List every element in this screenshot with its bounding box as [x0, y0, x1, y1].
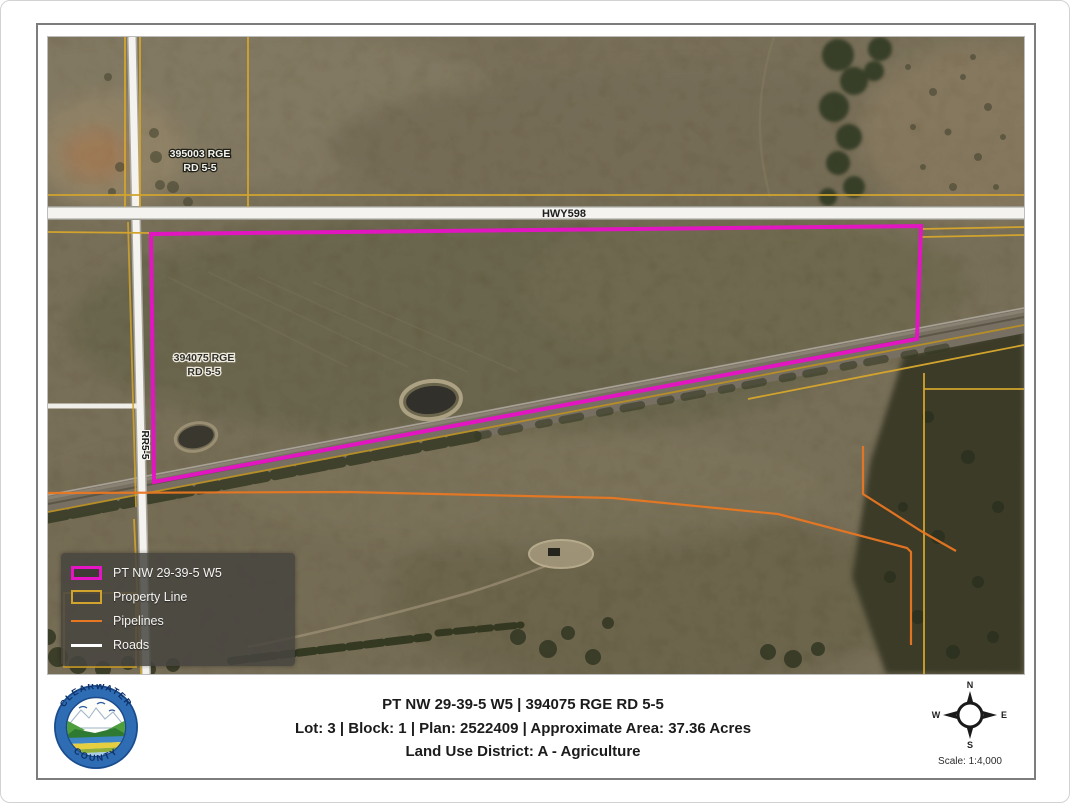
compass-west-label: W — [932, 710, 941, 720]
map-report-page: HWY598 395003 RGE RD 5-5 394075 RGE RD 5… — [0, 0, 1070, 803]
map-frame: HWY598 395003 RGE RD 5-5 394075 RGE RD 5… — [36, 23, 1036, 780]
county-logo-svg: CLEARWATER COUNTY — [53, 684, 139, 770]
legend-item-parcel: PT NW 29-39-5 W5 — [71, 561, 283, 585]
aerial-map-canvas: HWY598 395003 RGE RD 5-5 394075 RGE RD 5… — [48, 37, 1024, 674]
legend-item-roads: Roads — [71, 633, 283, 657]
rr-road-label: RR5-5 — [139, 431, 150, 460]
legend-label: PT NW 29-39-5 W5 — [113, 566, 222, 580]
rge-rd-mid-label-line2: RD 5-5 — [187, 366, 220, 378]
footer-line-1: PT NW 29-39-5 W5 | 394075 RGE RD 5-5 — [153, 693, 893, 717]
legend: PT NW 29-39-5 W5 Property Line Pipelines… — [61, 553, 295, 666]
rge-rd-mid-label-line1: 394075 RGE — [174, 352, 235, 364]
legend-label: Roads — [113, 638, 149, 652]
legend-label: Property Line — [113, 590, 187, 604]
scale-label: Scale: 1:4,000 — [910, 756, 1030, 767]
legend-label: Pipelines — [113, 614, 164, 628]
compass-east-label: E — [1001, 710, 1007, 720]
road-swatch — [71, 644, 102, 647]
footer-line-2: Lot: 3 | Block: 1 | Plan: 2522409 | Appr… — [153, 717, 893, 741]
parcel-swatch — [71, 566, 102, 580]
compass-south-label: S — [967, 740, 973, 749]
footer-line-3: Land Use District: A - Agriculture — [153, 740, 893, 764]
footer-title-block: PT NW 29-39-5 W5 | 394075 RGE RD 5-5 Lot… — [153, 693, 893, 764]
compass-north-label: N — [967, 680, 974, 690]
compass-rose-icon: N S E W — [930, 679, 1010, 749]
legend-item-property-line: Property Line — [71, 585, 283, 609]
legend-item-pipelines: Pipelines — [71, 609, 283, 633]
compass-block: N S E W Scale: 1:4,000 — [910, 679, 1030, 767]
rge-rd-top-label-line2: RD 5-5 — [183, 162, 216, 174]
pipeline-swatch — [71, 620, 102, 622]
hwy-label: HWY598 — [542, 208, 586, 220]
rge-rd-top-label-line1: 395003 RGE — [170, 148, 231, 160]
clearwater-county-logo: CLEARWATER COUNTY — [53, 684, 139, 770]
property-line-swatch — [71, 590, 102, 604]
